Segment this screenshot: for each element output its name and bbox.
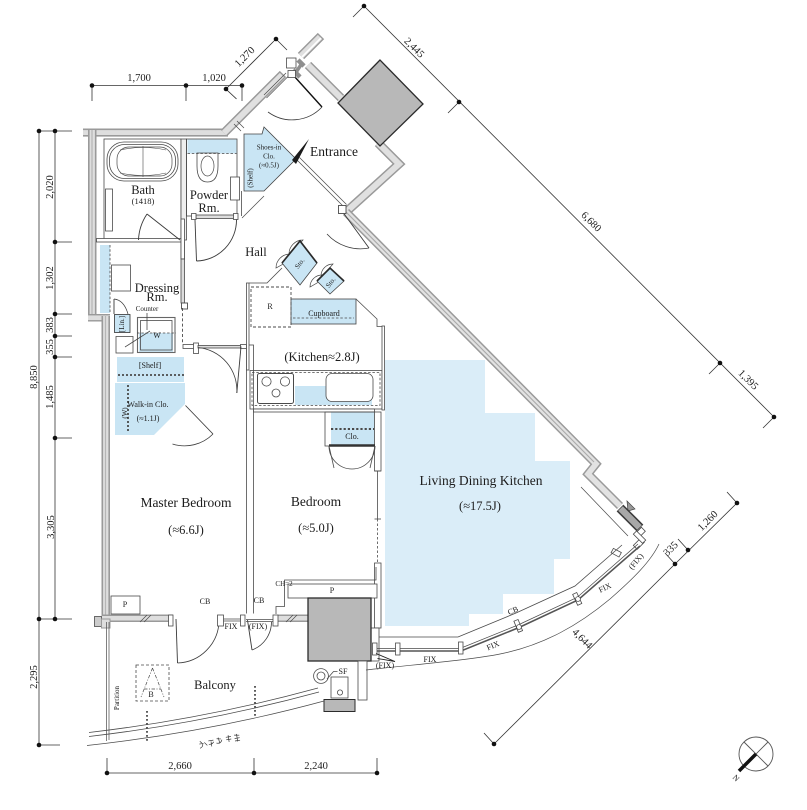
- svg-text:Counter: Counter: [136, 305, 159, 313]
- svg-text:Partition: Partition: [113, 685, 121, 710]
- svg-text:2,240: 2,240: [304, 761, 328, 772]
- svg-text:W: W: [153, 331, 161, 340]
- svg-text:Hall: Hall: [245, 245, 267, 259]
- svg-text:B: B: [148, 690, 153, 699]
- svg-text:P: P: [123, 600, 128, 609]
- svg-text:FIX: FIX: [424, 655, 437, 664]
- svg-text:2,295: 2,295: [29, 665, 40, 689]
- svg-text:(≈17.5J): (≈17.5J): [459, 499, 501, 513]
- svg-text:Bath: Bath: [131, 183, 155, 197]
- svg-text:(≈6.6J): (≈6.6J): [168, 523, 204, 537]
- svg-text:Clo.: Clo.: [345, 432, 359, 441]
- svg-text:Rm.: Rm.: [198, 201, 219, 215]
- svg-text:2,020: 2,020: [45, 175, 56, 199]
- svg-text:(FIX): (FIX): [376, 661, 395, 670]
- svg-text:3,305: 3,305: [46, 515, 57, 539]
- svg-text:CB: CB: [200, 597, 211, 606]
- svg-text:CB: CB: [254, 596, 265, 605]
- svg-text:(≈0.5J): (≈0.5J): [259, 162, 280, 170]
- svg-text:Walk-in Clo.: Walk-in Clo.: [127, 400, 168, 409]
- svg-text:Rm.: Rm.: [146, 290, 167, 304]
- svg-text:(Kitchen≈2.8J): (Kitchen≈2.8J): [284, 350, 359, 364]
- svg-text:1,700: 1,700: [127, 73, 151, 84]
- svg-text:(Shelf): (Shelf): [247, 168, 255, 188]
- svg-text:8,850: 8,850: [29, 365, 40, 389]
- svg-text:Cupboard: Cupboard: [308, 309, 340, 318]
- svg-text:383: 383: [45, 317, 56, 333]
- svg-text:(≈1.1J): (≈1.1J): [137, 414, 160, 423]
- svg-text:Powder: Powder: [190, 188, 229, 202]
- svg-text:[Shelf]: [Shelf]: [139, 361, 162, 370]
- svg-text:(FIX): (FIX): [249, 622, 268, 631]
- svg-text:Entrance: Entrance: [310, 144, 358, 159]
- svg-text:(W): (W): [121, 407, 129, 419]
- svg-text:(≈5.0J): (≈5.0J): [298, 521, 334, 535]
- svg-text:Balcony: Balcony: [194, 678, 236, 692]
- svg-text:FIX: FIX: [225, 622, 238, 631]
- svg-text:Bedroom: Bedroom: [291, 494, 342, 509]
- svg-text:1,485: 1,485: [45, 385, 56, 409]
- svg-text:(1418): (1418): [132, 196, 155, 206]
- svg-text:SF: SF: [339, 667, 348, 676]
- svg-text:CH=2: CH=2: [275, 580, 293, 588]
- svg-text:2,660: 2,660: [168, 761, 192, 772]
- svg-text:Living Dining Kitchen: Living Dining Kitchen: [420, 473, 543, 488]
- svg-text:1,020: 1,020: [202, 73, 226, 84]
- svg-text:Shoes-in: Shoes-in: [257, 144, 282, 152]
- svg-text:R: R: [267, 302, 273, 311]
- svg-text:Clo.: Clo.: [263, 153, 275, 161]
- svg-text:355: 355: [45, 339, 56, 355]
- svg-text:Master Bedroom: Master Bedroom: [140, 495, 232, 510]
- svg-text:P: P: [330, 586, 335, 595]
- svg-text:[Lin.]: [Lin.]: [118, 316, 126, 332]
- svg-text:1,302: 1,302: [45, 266, 56, 290]
